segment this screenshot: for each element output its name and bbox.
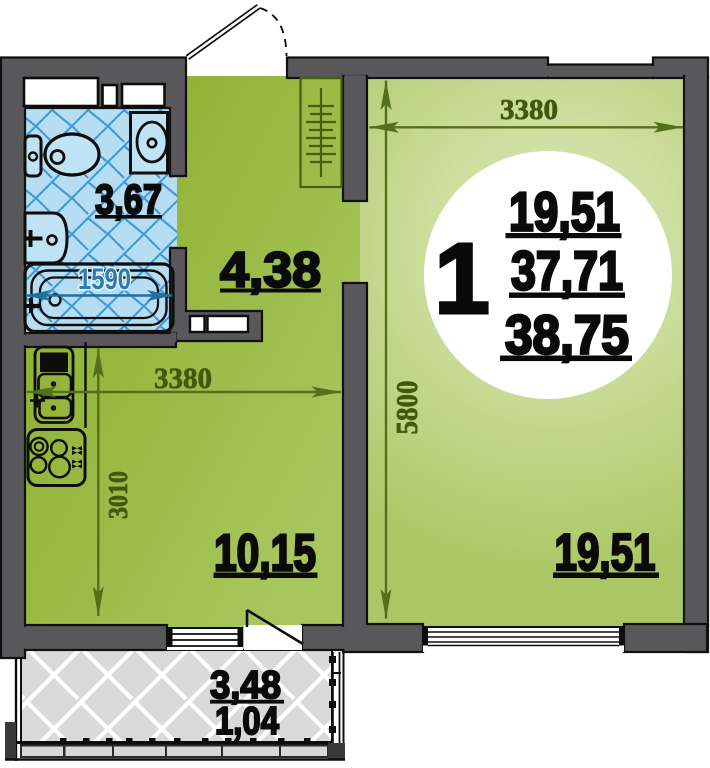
svg-text:1,04: 1,04: [215, 700, 279, 743]
svg-text:1590: 1590: [78, 263, 131, 296]
svg-text:3380: 3380: [154, 362, 212, 395]
svg-text:5800: 5800: [389, 381, 424, 435]
svg-text:37,71: 37,71: [511, 240, 623, 302]
svg-text:3010: 3010: [103, 471, 133, 519]
svg-text:3380: 3380: [500, 95, 558, 126]
svg-text:1: 1: [434, 223, 490, 335]
